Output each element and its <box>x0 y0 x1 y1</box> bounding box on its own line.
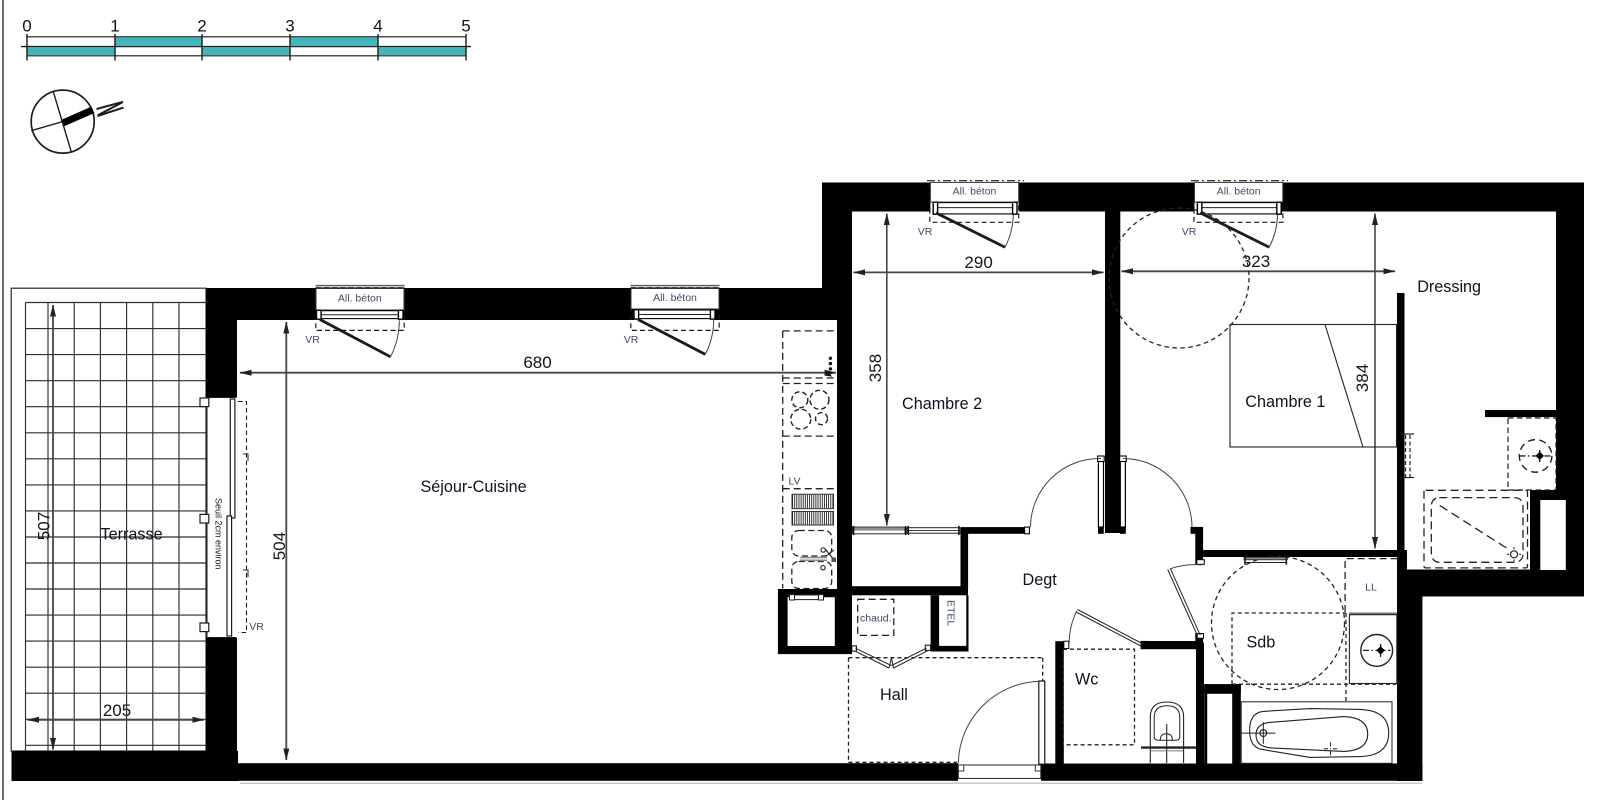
svg-text:Terrasse: Terrasse <box>101 525 163 543</box>
svg-text:680: 680 <box>523 353 551 372</box>
svg-text:Sdb: Sdb <box>1247 634 1276 652</box>
svg-text:Degt: Degt <box>1023 571 1058 589</box>
svg-text:507: 507 <box>35 512 54 540</box>
svg-text:VR: VR <box>624 334 639 346</box>
svg-text:VR: VR <box>305 334 320 346</box>
svg-text:Dressing: Dressing <box>1417 278 1481 296</box>
svg-text:All. béton: All. béton <box>1217 186 1261 198</box>
svg-text:LV: LV <box>789 476 801 488</box>
svg-text:1: 1 <box>110 17 119 36</box>
svg-text:205: 205 <box>103 701 131 720</box>
svg-text:Wc: Wc <box>1075 670 1098 688</box>
svg-text:2: 2 <box>197 17 206 36</box>
svg-text:All. béton: All. béton <box>653 292 697 304</box>
svg-text:Chambre 1: Chambre 1 <box>1245 393 1325 411</box>
svg-text:All. béton: All. béton <box>338 293 382 305</box>
svg-text:323: 323 <box>1242 252 1270 271</box>
svg-text:504: 504 <box>270 532 289 560</box>
svg-text:Hall: Hall <box>880 686 908 704</box>
svg-text:0: 0 <box>22 17 31 36</box>
svg-text:3: 3 <box>285 17 294 36</box>
svg-text:358: 358 <box>866 354 885 382</box>
svg-text:Chambre 2: Chambre 2 <box>902 395 982 413</box>
svg-text:chaud.: chaud. <box>860 613 892 625</box>
svg-text:VR: VR <box>249 621 264 633</box>
svg-text:290: 290 <box>964 253 992 272</box>
svg-text:4: 4 <box>373 17 382 36</box>
svg-text:Séjour-Cuisine: Séjour-Cuisine <box>421 478 527 496</box>
svg-text:VR: VR <box>918 226 933 238</box>
svg-text:384: 384 <box>1353 364 1372 392</box>
svg-text:Seuil 2cm environ: Seuil 2cm environ <box>214 498 224 570</box>
svg-text:VR: VR <box>1182 226 1197 238</box>
svg-text:5: 5 <box>461 17 470 36</box>
svg-text:All. béton: All. béton <box>953 186 997 198</box>
svg-text:ETEL: ETEL <box>945 600 957 626</box>
svg-text:LL: LL <box>1365 582 1377 594</box>
